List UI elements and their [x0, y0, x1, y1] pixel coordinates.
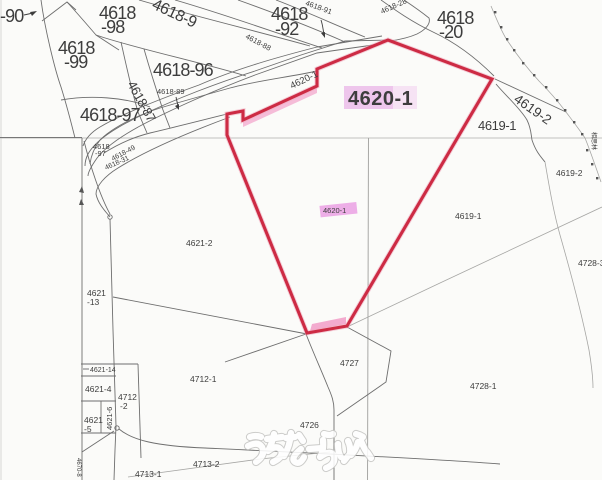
svg-text:4621-6: 4621-6: [105, 407, 114, 430]
svg-text:-13: -13: [87, 297, 100, 307]
svg-text:4620-1: 4620-1: [348, 88, 413, 110]
svg-text:4619-1: 4619-1: [478, 118, 516, 133]
svg-text:-20: -20: [439, 22, 463, 42]
svg-text:-99: -99: [64, 52, 88, 72]
svg-text:4713-2: 4713-2: [193, 459, 220, 469]
svg-text:4621-14: 4621-14: [90, 367, 116, 374]
svg-text:相思林: 相思林: [590, 132, 598, 150]
svg-text:4618-89: 4618-89: [157, 87, 185, 96]
svg-text:4619-2: 4619-2: [556, 168, 583, 178]
svg-text:4619-1: 4619-1: [455, 211, 482, 221]
svg-text:4728-1: 4728-1: [470, 381, 497, 391]
svg-text:4727: 4727: [340, 358, 359, 368]
svg-text:4621-2: 4621-2: [186, 238, 213, 248]
svg-text:-98: -98: [101, 17, 125, 37]
svg-text:4726: 4726: [300, 420, 319, 430]
svg-text:-92: -92: [275, 19, 299, 39]
svg-text:4618-97: 4618-97: [80, 105, 141, 125]
svg-text:-97: -97: [95, 149, 106, 158]
svg-text:4618-96: 4618-96: [153, 60, 214, 80]
svg-text:4670-8: 4670-8: [75, 458, 81, 477]
svg-text:4620-1: 4620-1: [323, 206, 346, 215]
svg-text:4712-1: 4712-1: [190, 374, 217, 384]
svg-text:4713-1: 4713-1: [135, 469, 162, 479]
svg-text:4728-3: 4728-3: [578, 258, 602, 268]
svg-text:-90: -90: [0, 6, 24, 26]
svg-text:-5: -5: [84, 424, 92, 434]
svg-text:-2: -2: [120, 401, 128, 411]
svg-text:4621-4: 4621-4: [85, 384, 112, 394]
